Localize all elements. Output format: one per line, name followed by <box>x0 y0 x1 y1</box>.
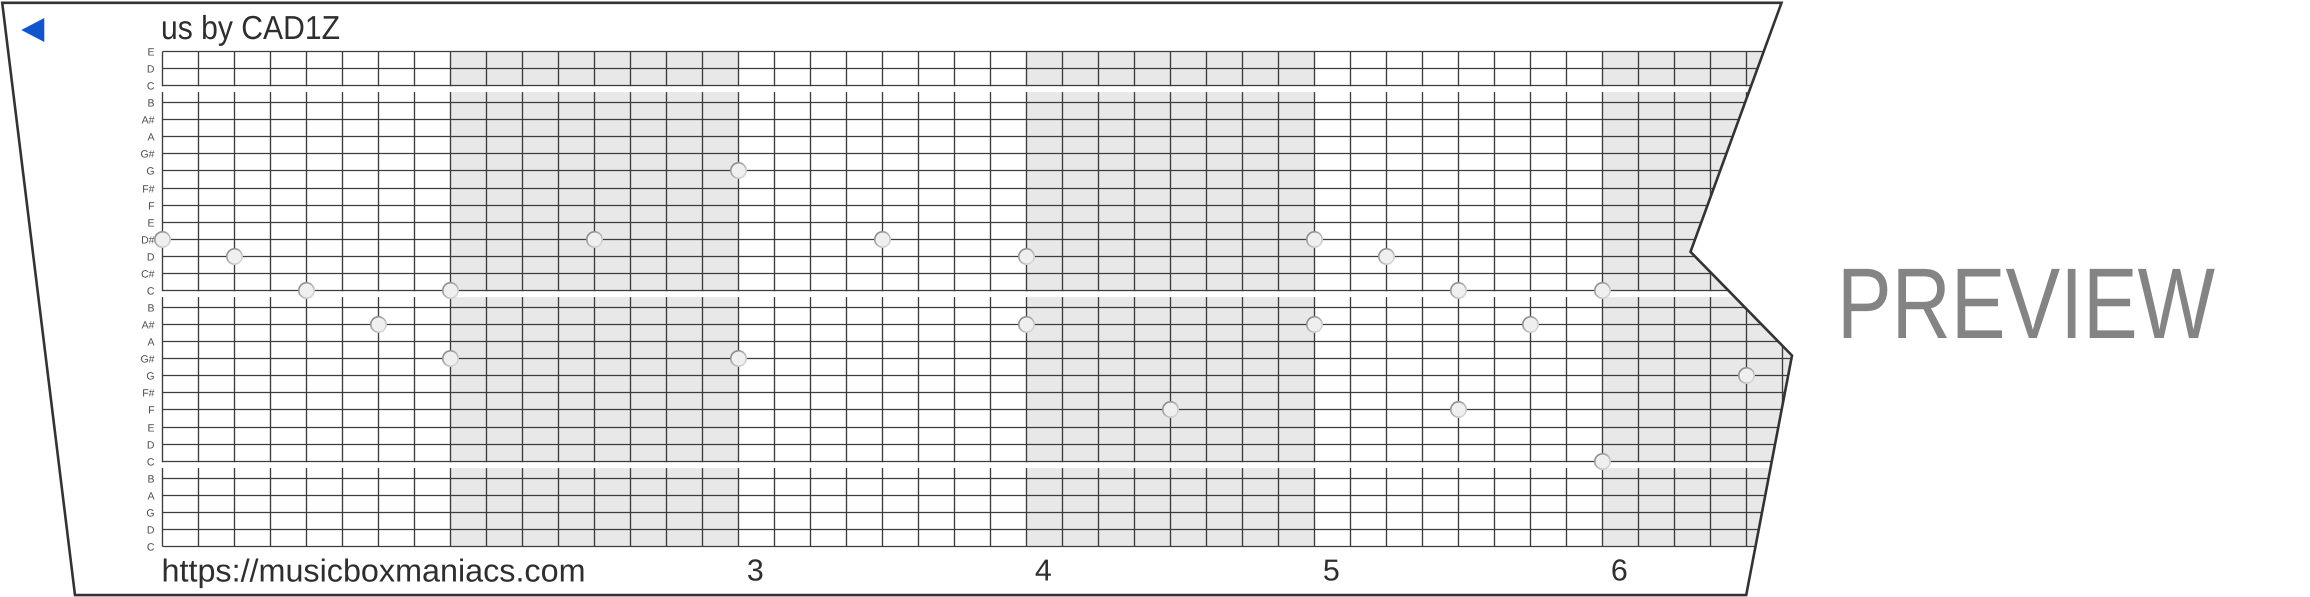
svg-text:G: G <box>146 507 154 519</box>
svg-text:D: D <box>147 524 155 536</box>
svg-text:A#: A# <box>142 114 155 126</box>
svg-text:A: A <box>147 490 154 502</box>
svg-text:C#: C# <box>141 268 155 280</box>
svg-text:D: D <box>147 63 155 75</box>
svg-text:D: D <box>147 439 155 451</box>
svg-text:us by CAD1Z: us by CAD1Z <box>161 10 340 47</box>
svg-text:C: C <box>147 456 155 468</box>
svg-text:https://musicboxmaniacs.com: https://musicboxmaniacs.com <box>162 553 586 589</box>
svg-text:A: A <box>147 131 154 143</box>
svg-text:G: G <box>146 370 154 382</box>
svg-text:C: C <box>147 541 155 553</box>
svg-text:6: 6 <box>1611 554 1628 588</box>
svg-text:F: F <box>148 200 154 212</box>
svg-text:B: B <box>147 97 154 109</box>
svg-text:G#: G# <box>140 353 154 365</box>
svg-text:C: C <box>147 285 155 297</box>
svg-text:B: B <box>147 473 154 485</box>
svg-text:A#: A# <box>142 319 155 331</box>
svg-text:D: D <box>147 251 155 263</box>
svg-text:B: B <box>147 302 154 314</box>
svg-text:E: E <box>147 217 154 229</box>
svg-text:F#: F# <box>142 387 154 399</box>
svg-text:E: E <box>147 422 154 434</box>
svg-text:D#: D# <box>141 234 155 246</box>
svg-text:A: A <box>147 336 154 348</box>
svg-text:PREVIEW: PREVIEW <box>1837 248 2215 360</box>
svg-text:4: 4 <box>1035 554 1052 588</box>
svg-text:F: F <box>148 404 154 416</box>
svg-text:5: 5 <box>1323 554 1340 588</box>
svg-text:F#: F# <box>142 183 154 195</box>
svg-text:C: C <box>147 80 155 92</box>
svg-text:3: 3 <box>747 554 764 588</box>
svg-text:E: E <box>147 46 154 58</box>
svg-text:G: G <box>146 165 154 177</box>
svg-text:G#: G# <box>140 148 154 160</box>
